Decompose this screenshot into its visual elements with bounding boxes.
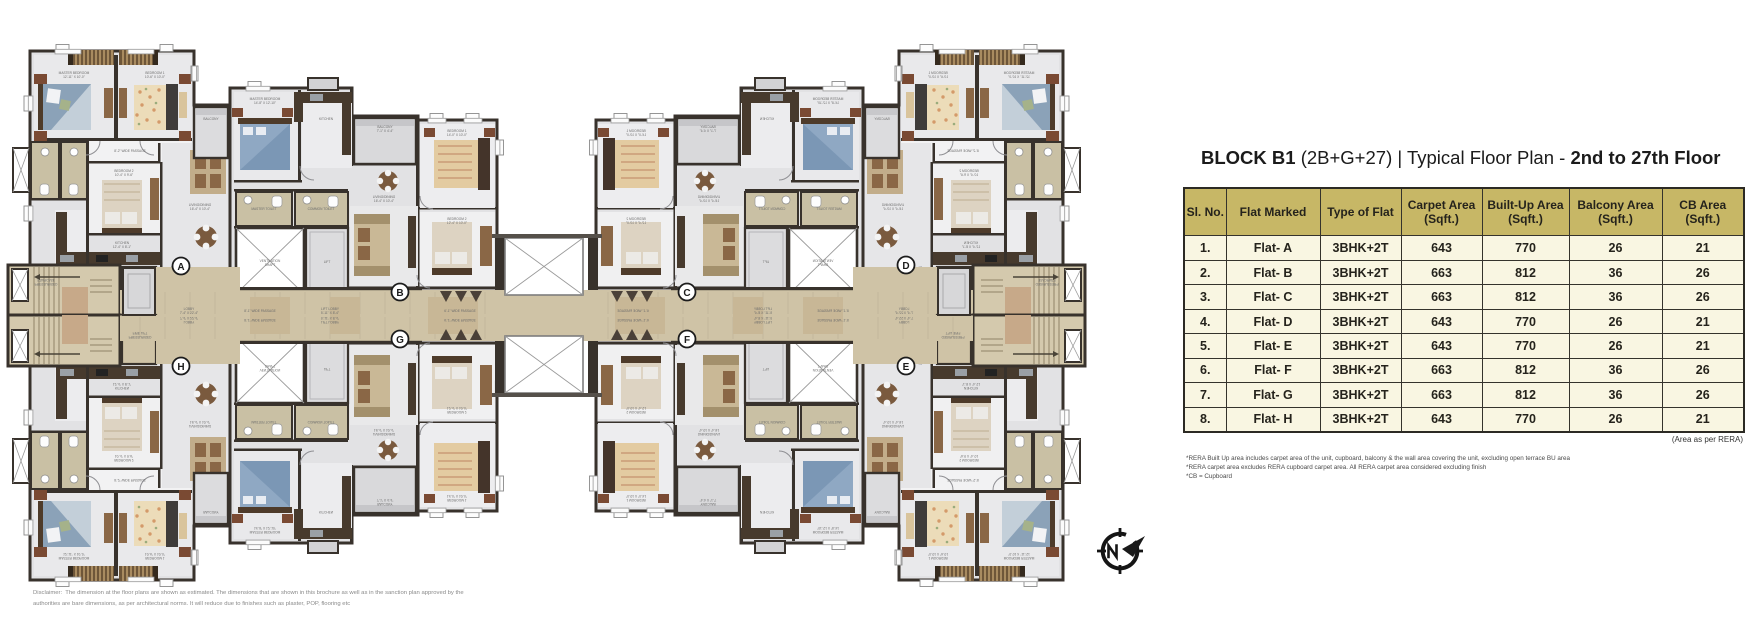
svg-text:A: A [177,262,184,273]
svg-text:E: E [903,362,910,373]
svg-text:D: D [902,261,909,272]
svg-text:C: C [683,288,690,299]
svg-text:G: G [396,335,404,346]
svg-text:F: F [684,335,690,346]
svg-text:B: B [396,288,403,299]
svg-text:H: H [177,362,184,373]
